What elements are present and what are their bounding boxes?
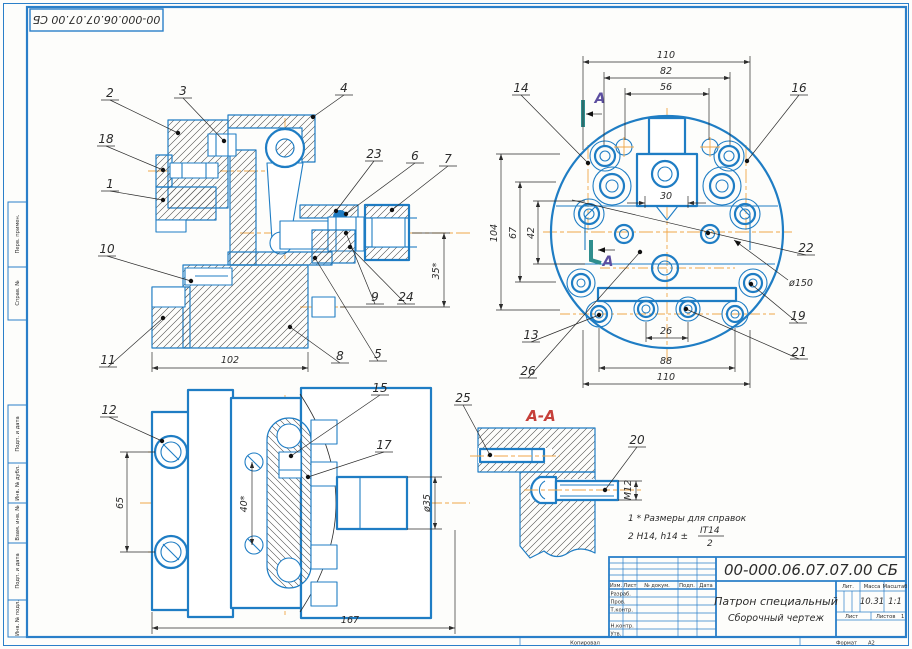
callout-20: 20 <box>629 433 645 447</box>
callout-26: 26 <box>520 364 536 378</box>
dim-m12: М12 <box>623 480 634 500</box>
margin-field-invpodl: Инв. № подл. <box>15 600 21 636</box>
tb-row-tkontr: Т.контр. <box>610 608 634 614</box>
callout-23: 23 <box>366 147 381 161</box>
callout-7: 7 <box>444 152 452 166</box>
margin-field-sprav: Справ. № <box>15 280 21 306</box>
footer-format-label: Формат <box>836 641 857 647</box>
tb-doc-number: 00-000.06.07.07.00 СБ <box>724 561 898 579</box>
tb-col-izm: Изм. <box>610 583 623 589</box>
section-aa-title: А-А <box>525 407 555 425</box>
dim-40: 40* <box>239 495 250 512</box>
callout-19: 19 <box>790 309 805 323</box>
tb-row-razrab: Разраб. <box>611 592 632 598</box>
tb-lit-label: Лит. <box>842 584 854 590</box>
tb-row-utv: Утв. <box>611 632 622 638</box>
sheet-frame: Перв. примен. Справ. № Подп. и дата Инв.… <box>4 4 909 646</box>
tb-row-prov: Пров. <box>611 600 626 606</box>
note-line-2: 2 Н14, h14 ± <box>628 532 688 542</box>
dim-left-42: 42 <box>526 227 537 239</box>
section-label-a-top: А <box>594 91 606 107</box>
footer-copy-label: Копировал <box>570 641 600 647</box>
margin-field-invdubl: Инв. № дубл. <box>15 465 21 501</box>
callout-2: 2 <box>106 86 114 100</box>
tb-sheets-value: 1 <box>901 614 904 620</box>
dim-mid-30: 30 <box>660 191 672 202</box>
tb-sheets-label: Листов <box>876 614 895 620</box>
dim-top-110: 110 <box>657 50 675 61</box>
note-line-1: 1 * Размеры для справок <box>628 514 747 524</box>
callout-24: 24 <box>398 290 413 304</box>
dim-d35: ø35 <box>422 494 433 513</box>
tb-scale-label: Масштаб <box>883 584 908 590</box>
tb-title: Патрон специальный <box>714 595 838 608</box>
main-section-view: 102 35* 2 3 4 18 1 23 6 7 10 9 24 11 8 5 <box>97 81 470 372</box>
dim-top-82: 82 <box>660 66 672 77</box>
callout-14: 14 <box>513 81 528 95</box>
face-view: А А 110 82 56 30 104 67 <box>489 50 815 388</box>
dim-35: 35* <box>431 262 442 279</box>
dim-102: 102 <box>221 355 239 366</box>
callout-11: 11 <box>100 353 115 367</box>
callout-6: 6 <box>411 149 419 163</box>
note-fraction-denominator: 2 <box>707 539 713 549</box>
dim-top-56: 56 <box>660 82 672 93</box>
callout-16: 16 <box>791 81 807 95</box>
callout-17: 17 <box>376 438 392 452</box>
section-aa-parts <box>470 428 642 558</box>
tb-subtitle: Сборочный чертеж <box>728 613 825 624</box>
tb-mass-value: 10.31 <box>860 597 884 607</box>
dim-bot-88: 88 <box>660 356 672 367</box>
callout-1: 1 <box>106 177 114 191</box>
callout-22: 22 <box>798 241 813 255</box>
margin-field-podp2: Подп. и дата <box>15 553 21 588</box>
tb-mass-label: Масса <box>864 584 881 590</box>
callout-9: 9 <box>371 290 379 304</box>
margin-field-perv: Перв. примен. <box>15 214 21 253</box>
drawing-canvas: Перв. примен. Справ. № Подп. и дата Инв.… <box>0 0 912 649</box>
callout-18: 18 <box>98 132 114 146</box>
margin-field-podp1: Подп. и дата <box>15 416 21 451</box>
dim-bot-26: 26 <box>660 326 672 337</box>
bottom-view: 65 40* ø35 167 12 15 17 <box>100 381 470 634</box>
callout-15: 15 <box>372 381 387 395</box>
tb-sheet-label: Лист <box>845 614 858 620</box>
callout-5: 5 <box>374 347 382 361</box>
dim-dia-150: ø150 <box>788 278 813 289</box>
callout-3: 3 <box>179 84 187 98</box>
callout-13: 13 <box>523 328 538 342</box>
tb-col-doc: № докум. <box>644 583 670 589</box>
callout-12: 12 <box>101 403 116 417</box>
tb-col-list: Лист <box>623 583 636 589</box>
drawing-sheet: Перв. примен. Справ. № Подп. и дата Инв.… <box>0 0 912 649</box>
dim-65: 65 <box>115 497 126 509</box>
dim-left-104: 104 <box>489 224 500 242</box>
dim-167: 167 <box>341 615 359 626</box>
callout-25: 25 <box>455 391 470 405</box>
title-block: Изм. Лист № докум. Подп. Дата Разраб. Пр… <box>520 557 907 647</box>
section-aa-view: А-А М12 25 20 <box>454 391 646 558</box>
callout-21: 21 <box>791 345 806 359</box>
section-label-a-bottom: А <box>602 254 614 270</box>
note-fraction-numerator: IT14 <box>700 526 720 536</box>
dim-left-67: 67 <box>508 227 519 239</box>
bottom-view-parts <box>152 388 431 618</box>
margin-field-vzam: Взам. инв. № <box>15 505 21 541</box>
callout-4: 4 <box>340 81 348 95</box>
tb-scale-value: 1:1 <box>888 597 902 607</box>
tb-col-data: Дата <box>699 583 712 589</box>
callout-8: 8 <box>336 349 344 363</box>
callout-10: 10 <box>99 242 115 256</box>
tb-row-nkontr: Н.контр. <box>611 624 635 630</box>
notes: 1 * Размеры для справок 2 Н14, h14 ± IT1… <box>628 514 747 549</box>
footer-format-value: А2 <box>868 641 875 647</box>
tb-col-podp: Подп. <box>679 583 695 589</box>
stamp-doc-number: 00-000.06.07.07.00 СБ <box>33 13 161 26</box>
dim-bot-110: 110 <box>657 372 675 383</box>
